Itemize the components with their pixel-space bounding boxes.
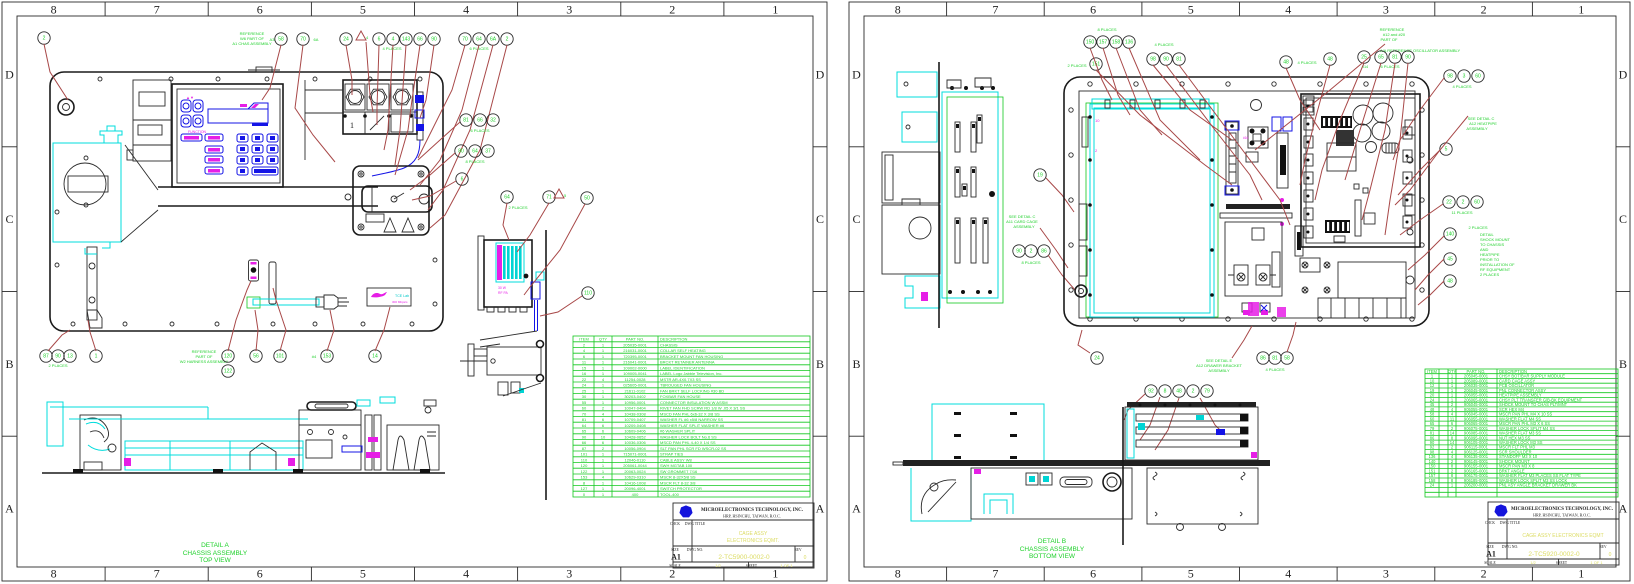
svg-text:2: 2 <box>1095 148 1098 153</box>
svg-text:1: 1 <box>602 463 605 468</box>
svg-text:LABEL IDENTIFICATION: LABEL IDENTIFICATION <box>660 366 705 371</box>
svg-text:A: A <box>5 502 14 516</box>
svg-text:A: A <box>852 502 861 516</box>
svg-text:10438-0308: 10438-0308 <box>624 412 646 417</box>
svg-text:10047-0404: 10047-0404 <box>624 406 646 411</box>
svg-text:10709-0407: 10709-0407 <box>624 417 646 422</box>
svg-text:CHASSIS: CHASSIS <box>660 343 678 348</box>
svg-text:3: 3 <box>1463 74 1466 80</box>
svg-text:58: 58 <box>278 37 284 43</box>
svg-text:A1: A1 <box>671 553 681 562</box>
svg-text:SCALE: SCALE <box>669 564 681 568</box>
svg-text:PART NO.: PART NO. <box>626 337 644 342</box>
svg-text:16: 16 <box>582 371 587 376</box>
svg-text:24: 24 <box>1094 356 1100 362</box>
svg-text:HRP, HSINCHU, TAIWAN, R.O.C.: HRP, HSINCHU, TAIWAN, R.O.C. <box>1533 513 1591 519</box>
svg-text:45: 45 <box>1447 257 1453 263</box>
svg-text:60: 60 <box>582 406 587 411</box>
svg-text:2 PLACES: 2 PLACES <box>1480 272 1499 277</box>
svg-text:81: 81 <box>1272 356 1278 362</box>
svg-text:4 PLACES: 4 PLACES <box>382 46 401 51</box>
svg-text:90: 90 <box>582 435 587 440</box>
svg-text:DETAIL A: DETAIL A <box>201 542 229 549</box>
svg-text:#6 WASHER SPLIT: #6 WASHER SPLIT <box>660 429 696 434</box>
svg-text:1: 1 <box>602 383 605 388</box>
svg-text:1: 1 <box>602 469 605 474</box>
svg-text:81: 81 <box>582 417 587 422</box>
svg-text:DWG NO.: DWG NO. <box>1502 545 1519 549</box>
svg-text:CONNECTOR INSULATION W ASSM: CONNECTOR INSULATION W ASSM <box>660 400 728 405</box>
svg-text:SW GROMMET 7/16: SW GROMMET 7/16 <box>660 469 698 474</box>
svg-text:1: 1 <box>602 354 605 359</box>
svg-text:1: 1 <box>602 389 605 394</box>
svg-text:LABEL Logo Jabble Television,: LABEL Logo Jabble Television, Inc. <box>660 371 723 376</box>
svg-text:110: 110 <box>581 458 588 463</box>
svg-text:2 PLACES: 2 PLACES <box>1067 63 1086 68</box>
svg-text:1: 1 <box>602 348 605 353</box>
svg-text:D: D <box>816 67 825 81</box>
svg-text:205061-0044: 205061-0044 <box>623 463 647 468</box>
svg-text:2: 2 <box>506 37 509 43</box>
svg-text:8: 8 <box>51 3 57 17</box>
svg-text:ELECTRONICS EQMT.: ELECTRONICS EQMT. <box>727 538 779 544</box>
svg-text:TBROUGED FAN HOUSING: TBROUGED FAN HOUSING <box>660 383 711 388</box>
svg-text:C: C <box>1619 212 1627 226</box>
svg-text:109005-0041: 109005-0041 <box>623 371 647 376</box>
svg-text:2: 2 <box>1192 389 1195 395</box>
svg-text:2-TC5900-0002-0: 2-TC5900-0002-0 <box>718 554 770 561</box>
svg-text:CHASSIS ASSEMBLY: CHASSIS ASSEMBLY <box>183 550 248 557</box>
svg-text:22: 22 <box>1446 200 1452 206</box>
svg-text:81: 81 <box>1392 55 1398 61</box>
svg-text:4: 4 <box>583 348 586 353</box>
svg-text:1/2: 1/2 <box>715 563 721 568</box>
svg-text:MSCD FAN PHL 6x6-32 X 3/8 SS: MSCD FAN PHL 6x6-32 X 3/8 SS <box>660 412 720 417</box>
svg-text:SIZE: SIZE <box>671 548 679 552</box>
svg-text:87: 87 <box>582 446 587 451</box>
svg-text:MICROELECTRONICS TECHNOLOGY, I: MICROELECTRONICS TECHNOLOGY, INC. <box>701 508 803 513</box>
svg-text:SWITCH PROTECTOR: SWITCH PROTECTOR <box>660 486 702 491</box>
svg-text:0: 0 <box>583 492 586 497</box>
svg-text:90: 90 <box>431 37 437 43</box>
svg-text:A: A <box>816 502 825 516</box>
svg-text:64: 64 <box>504 195 510 201</box>
svg-text:1/2: 1/2 <box>1530 560 1536 565</box>
svg-text:60: 60 <box>1474 200 1480 206</box>
svg-text:2: 2 <box>1030 249 1033 255</box>
svg-text:21611-0102: 21611-0102 <box>624 389 646 394</box>
svg-text:64: 64 <box>472 149 478 155</box>
svg-text:6A: 6A <box>314 37 319 42</box>
svg-text:65: 65 <box>582 429 587 434</box>
svg-text:10: 10 <box>601 435 606 440</box>
svg-text:C: C <box>816 212 824 226</box>
svg-text:4: 4 <box>602 377 605 382</box>
svg-text:2: 2 <box>583 343 586 348</box>
svg-text:DWG TITLE: DWG TITLE <box>1500 521 1521 525</box>
svg-text:98: 98 <box>1150 57 1156 63</box>
svg-text:30: 30 <box>582 394 587 399</box>
svg-text:48: 48 <box>1176 389 1182 395</box>
svg-text:4: 4 <box>602 412 605 417</box>
svg-text:2: 2 <box>1481 567 1487 581</box>
svg-text:158: 158 <box>1112 40 1121 46</box>
svg-text:ASSEMBLY: ASSEMBLY <box>1466 126 1488 131</box>
svg-text:SHEET: SHEET <box>746 564 758 568</box>
svg-text:1: 1 <box>1578 567 1584 581</box>
svg-text:TOOL-400: TOOL-400 <box>660 492 680 497</box>
svg-text:#4: #4 <box>312 354 317 359</box>
svg-text:8: 8 <box>583 481 586 486</box>
svg-text:2: 2 <box>669 567 675 581</box>
svg-text:24: 24 <box>343 37 349 43</box>
svg-text:4 PLACES: 4 PLACES <box>1154 42 1173 47</box>
svg-text:86: 86 <box>1260 356 1266 362</box>
svg-text:RIVET FAN FHD SCRW RD 1/8 W .0: RIVET FAN FHD SCRW RD 1/8 W .05 X 3/1 SS <box>660 406 746 411</box>
svg-text:37: 37 <box>485 149 491 155</box>
svg-text:101: 101 <box>581 452 588 457</box>
svg-text:WASHER FLAT SPLIT WASHER #6: WASHER FLAT SPLIT WASHER #6 <box>660 423 725 428</box>
svg-text:1: 1 <box>1578 3 1584 17</box>
svg-text:1: 1 <box>350 121 354 130</box>
svg-text:1: 1 <box>602 366 605 371</box>
svg-text:140: 140 <box>1446 232 1455 238</box>
svg-text:COLLAR SELF HEATING: COLLAR SELF HEATING <box>660 348 706 353</box>
svg-text:206200-0001: 206200-0001 <box>1464 483 1489 488</box>
svg-text:DETAIL B: DETAIL B <box>1038 538 1066 545</box>
svg-text:64: 64 <box>582 423 587 428</box>
svg-text:6 PLACES: 6 PLACES <box>1380 64 1399 69</box>
svg-text:W2 HARNESS ASSEMBLY: W2 HARNESS ASSEMBLY <box>180 359 229 364</box>
svg-text:6: 6 <box>602 440 605 445</box>
svg-text:87: 87 <box>43 354 49 360</box>
svg-text:122: 122 <box>581 469 588 474</box>
svg-text:50: 50 <box>584 196 590 202</box>
svg-text:5: 5 <box>1445 147 1448 153</box>
svg-text:127: 127 <box>581 486 588 491</box>
svg-text:64: 64 <box>476 37 482 43</box>
svg-text:70: 70 <box>462 37 468 43</box>
svg-text:81: 81 <box>1176 57 1182 63</box>
svg-text:136: 136 <box>1125 40 1134 46</box>
svg-text:22: 22 <box>582 377 587 382</box>
svg-text:10209-0408: 10209-0408 <box>624 423 646 428</box>
svg-text:58: 58 <box>1284 356 1290 362</box>
svg-text:A3: A3 <box>270 37 276 42</box>
svg-text:216041-0001: 216041-0001 <box>623 360 647 365</box>
svg-text:8: 8 <box>51 567 57 581</box>
svg-text:MSCR FLT 8-32 3/8: MSCR FLT 8-32 3/8 <box>660 481 696 486</box>
svg-text:66: 66 <box>477 118 483 124</box>
svg-text:QTY: QTY <box>599 337 608 342</box>
svg-text:150: 150 <box>1086 40 1095 46</box>
svg-text:B: B <box>852 357 860 371</box>
svg-text:WASHER LOCK BOLT No.6 SS: WASHER LOCK BOLT No.6 SS <box>660 435 717 440</box>
svg-text:SCALE: SCALE <box>1484 561 1496 565</box>
svg-text:CAGE ASSY: CAGE ASSY <box>739 531 768 537</box>
svg-text:10036-0306: 10036-0306 <box>624 440 646 445</box>
svg-text:3: 3 <box>1383 567 1389 581</box>
svg-text:8 PLACES: 8 PLACES <box>465 159 484 164</box>
svg-text:7: 7 <box>154 567 160 581</box>
svg-text:REV: REV <box>1599 545 1607 549</box>
svg-text:60: 60 <box>1475 74 1481 80</box>
svg-text:4: 4 <box>366 35 369 40</box>
svg-text:25: 25 <box>582 389 587 394</box>
svg-text:15: 15 <box>582 366 587 371</box>
svg-text:4: 4 <box>392 37 395 43</box>
svg-text:153: 153 <box>581 475 588 480</box>
svg-text:2: 2 <box>669 3 675 17</box>
svg-text:4: 4 <box>1285 3 1291 17</box>
svg-text:10629-0310: 10629-0310 <box>624 475 646 480</box>
svg-text:715071-0001: 715071-0001 <box>623 452 647 457</box>
svg-text:6 PLACES: 6 PLACES <box>470 128 489 133</box>
svg-text:B: B <box>5 357 13 371</box>
svg-text:FUNCTION: FUNCTION <box>188 130 207 134</box>
svg-text:TCE Lab: TCE Lab <box>395 294 409 298</box>
svg-text:#16: #16 <box>1243 136 1249 140</box>
svg-text:RF PA: RF PA <box>498 291 508 295</box>
svg-text:ASSEMBLY: ASSEMBLY <box>1208 368 1230 373</box>
svg-text:2: 2 <box>602 406 605 411</box>
svg-text:32: 32 <box>490 118 496 124</box>
svg-text:MSCR 8-32X5/8 SS: MSCR 8-32X5/8 SS <box>660 475 696 480</box>
svg-text:5: 5 <box>1188 567 1194 581</box>
svg-text:1: 1 <box>602 360 605 365</box>
svg-text:6: 6 <box>602 417 605 422</box>
svg-text:6: 6 <box>257 3 263 17</box>
svg-text:10416-1008: 10416-1008 <box>624 481 646 486</box>
svg-text:65: 65 <box>1378 55 1384 61</box>
svg-text:10609-0406: 10609-0406 <box>624 429 646 434</box>
svg-text:6: 6 <box>378 37 381 43</box>
svg-text:153: 153 <box>323 354 332 360</box>
svg-text:90: 90 <box>1405 55 1411 61</box>
svg-text:143: 143 <box>402 37 411 43</box>
svg-text:MICROELECTRONICS TECHNOLOGY, I: MICROELECTRONICS TECHNOLOGY, INC. <box>1511 507 1613 512</box>
svg-text:205035-0001: 205035-0001 <box>623 343 647 348</box>
svg-text:ITEM: ITEM <box>579 337 589 342</box>
svg-text:90: 90 <box>1163 57 1169 63</box>
svg-text:400: 400 <box>632 492 639 497</box>
svg-text:BRCKT RETAINER ANTENNA: BRCKT RETAINER ANTENNA <box>660 360 715 365</box>
svg-text:90: 90 <box>1016 249 1022 255</box>
svg-text:8 PLACES: 8 PLACES <box>1021 260 1040 265</box>
svg-text:157: 157 <box>1099 40 1108 46</box>
svg-text:1: 1 <box>1451 483 1454 488</box>
svg-text:2: 2 <box>43 36 46 42</box>
svg-text:1: 1 <box>772 3 778 17</box>
svg-text:1 OF 1: 1 OF 1 <box>780 563 793 568</box>
svg-text:101: 101 <box>276 354 285 360</box>
svg-text:122: 122 <box>224 369 233 375</box>
svg-text:4: 4 <box>463 567 469 581</box>
svg-text:A1 CHAS ASSEMBLY: A1 CHAS ASSEMBLY <box>232 41 272 46</box>
svg-text:4 PLACES: 4 PLACES <box>1297 60 1316 65</box>
svg-text:10: 10 <box>1095 118 1100 123</box>
svg-text:71: 71 <box>546 195 552 201</box>
svg-text:A/A REFERENCE OSCILLATOR ASSEM: A/A REFERENCE OSCILLATOR ASSEMBLY <box>1380 48 1461 53</box>
svg-text:7: 7 <box>154 3 160 17</box>
svg-text:SLT PAN PHL SCR FD WSCR-02 SS: SLT PAN PHL SCR FD WSCR-02 SS <box>660 446 727 451</box>
svg-text:DESCRIPTION: DESCRIPTION <box>660 337 687 342</box>
svg-text:D: D <box>852 67 861 81</box>
svg-text:14: 14 <box>372 354 378 360</box>
svg-text:24: 24 <box>582 383 587 388</box>
svg-text:1: 1 <box>602 492 605 497</box>
svg-text:10428-0652: 10428-0652 <box>624 435 646 440</box>
svg-text:C: C <box>5 212 13 226</box>
svg-text:4 PLACES: 4 PLACES <box>1452 84 1471 89</box>
svg-text:CHCK: CHCK <box>1485 521 1495 525</box>
svg-text:ASSEMBLY: ASSEMBLY <box>1013 224 1035 229</box>
svg-text:0: 0 <box>1609 552 1612 558</box>
svg-text:WASHER FL #6 x5/8 NARROW SS: WASHER FL #6 x5/8 NARROW SS <box>660 417 723 422</box>
svg-text:4: 4 <box>602 475 605 480</box>
svg-text:D: D <box>5 67 14 81</box>
svg-text:A1: A1 <box>1486 550 1496 559</box>
svg-text:30203-0402: 30203-0402 <box>624 394 646 399</box>
svg-text:80: 80 <box>458 149 464 155</box>
svg-text:55: 55 <box>582 400 587 405</box>
svg-text:7: 7 <box>992 3 998 17</box>
svg-text:6A: 6A <box>490 37 497 43</box>
svg-text:8: 8 <box>895 3 901 17</box>
svg-text:11: 11 <box>582 360 587 365</box>
svg-text:13: 13 <box>67 354 73 360</box>
svg-text:11 PLACES: 11 PLACES <box>1451 210 1472 215</box>
svg-text:48: 48 <box>1327 57 1333 63</box>
svg-text:3: 3 <box>1383 3 1389 17</box>
svg-text:A: A <box>1619 502 1628 516</box>
svg-text:79: 79 <box>1204 389 1210 395</box>
svg-text:720395-0001: 720395-0001 <box>623 354 647 359</box>
svg-text:STRAP TIES: STRAP TIES <box>660 452 684 457</box>
svg-text:PART OF: PART OF <box>1381 37 1398 42</box>
svg-text:1: 1 <box>602 458 605 463</box>
svg-text:109002-0000: 109002-0000 <box>623 366 647 371</box>
svg-text:90: 90 <box>55 354 61 360</box>
svg-text:2 PLACES: 2 PLACES <box>1468 225 1487 230</box>
svg-text:1: 1 <box>95 354 98 360</box>
svg-text:DWG TITLE: DWG TITLE <box>685 522 706 526</box>
svg-text:66: 66 <box>417 37 423 43</box>
svg-text:81: 81 <box>463 118 469 124</box>
svg-text:4: 4 <box>1285 567 1291 581</box>
svg-text:3: 3 <box>566 567 572 581</box>
svg-text:120: 120 <box>581 463 588 468</box>
svg-text:1: 1 <box>602 343 605 348</box>
svg-text:5: 5 <box>360 567 366 581</box>
svg-text:6: 6 <box>257 567 263 581</box>
svg-text:19: 19 <box>1037 173 1043 179</box>
svg-text:CHASSIS ASSEMBLY: CHASSIS ASSEMBLY <box>1020 546 1085 553</box>
svg-text:2: 2 <box>602 446 605 451</box>
svg-text:2: 2 <box>1462 200 1465 206</box>
svg-text:6: 6 <box>461 177 464 183</box>
svg-text:C: C <box>852 212 860 226</box>
svg-text:120: 120 <box>224 354 233 360</box>
svg-text:HRP, HSINCHU, TAIWAN, R.O.C.: HRP, HSINCHU, TAIWAN, R.O.C. <box>723 514 781 520</box>
svg-text:1: 1 <box>602 452 605 457</box>
svg-text:8 PLACES: 8 PLACES <box>1097 27 1116 32</box>
svg-text:86: 86 <box>1041 249 1047 255</box>
svg-text:7: 7 <box>992 567 998 581</box>
svg-text:1: 1 <box>602 486 605 491</box>
svg-text:FOXBAR FAN HOUSE: FOXBAR FAN HOUSE <box>660 394 701 399</box>
svg-text:1: 1 <box>772 567 778 581</box>
svg-text:2 PLACES: 2 PLACES <box>48 363 67 368</box>
svg-text:025605-0001: 025605-0001 <box>623 383 647 388</box>
svg-text:D: D <box>1619 67 1628 81</box>
svg-text:216031-0001: 216031-0001 <box>623 348 647 353</box>
svg-text:8: 8 <box>1164 389 1167 395</box>
svg-text:6: 6 <box>602 423 605 428</box>
svg-text:4 PLACES: 4 PLACES <box>1265 367 1284 372</box>
svg-text:10956-0001: 10956-0001 <box>624 400 646 405</box>
svg-text:1: 1 <box>602 371 605 376</box>
svg-text:DWG NO.: DWG NO. <box>687 548 704 552</box>
svg-text:1 OF 1: 1 OF 1 <box>1590 560 1603 565</box>
svg-text:SWH MGTAB 100: SWH MGTAB 100 <box>660 463 693 468</box>
svg-text:SIZE: SIZE <box>1486 545 1494 549</box>
svg-text:FAN BRKT SELF LOCKING #30 BD: FAN BRKT SELF LOCKING #30 BD <box>660 389 724 394</box>
svg-text:3: 3 <box>566 3 572 17</box>
svg-text:11254-0028: 11254-0028 <box>624 377 646 382</box>
svg-text:66: 66 <box>582 440 587 445</box>
svg-text:20096-4001: 20096-4001 <box>624 486 646 491</box>
svg-text:48: 48 <box>1447 279 1453 285</box>
svg-text:5: 5 <box>1188 3 1194 17</box>
svg-text:20063-0024: 20063-0024 <box>624 469 646 474</box>
svg-text:48: 48 <box>1283 60 1289 66</box>
svg-text:8: 8 <box>895 567 901 581</box>
svg-text:2 PLACES: 2 PLACES <box>508 205 527 210</box>
svg-text:110: 110 <box>584 291 592 297</box>
svg-text:▲▼: ▲▼ <box>186 95 194 100</box>
svg-text:2-TC5920-0002-0: 2-TC5920-0002-0 <box>1528 551 1580 558</box>
svg-text:5: 5 <box>564 193 567 198</box>
svg-text:4: 4 <box>463 3 469 17</box>
svg-text:6: 6 <box>583 354 586 359</box>
svg-text:10056-0904: 10056-0904 <box>624 446 646 451</box>
svg-text:98: 98 <box>1447 74 1453 80</box>
svg-text:300 Mbps/s: 300 Mbps/s <box>392 300 408 304</box>
svg-text:12046-0110: 12046-0110 <box>624 458 646 463</box>
svg-text:PNL ASY ANGLE BRACKET DRAWER B: PNL ASY ANGLE BRACKET DRAWER BK <box>1499 483 1577 488</box>
svg-text:SHEET: SHEET <box>1556 561 1568 565</box>
svg-text:1: 1 <box>602 481 605 486</box>
svg-text:TOP VIEW: TOP VIEW <box>199 557 231 564</box>
svg-text:6: 6 <box>1090 567 1096 581</box>
svg-text:MSCD PAN PHL 4-40 X 1/4 SS: MSCD PAN PHL 4-40 X 1/4 SS <box>660 440 716 445</box>
svg-text:B: B <box>1619 357 1627 371</box>
svg-text:CAGE ASSY ELECTRONICS EQMT: CAGE ASSY ELECTRONICS EQMT <box>1522 533 1603 539</box>
svg-text:CHCK: CHCK <box>670 522 680 526</box>
svg-text:0: 0 <box>804 555 807 561</box>
svg-text:MSTR AR-4X0.7X3 SS: MSTR AR-4X0.7X3 SS <box>660 377 701 382</box>
svg-text:56: 56 <box>253 354 259 360</box>
svg-text:70: 70 <box>300 37 306 43</box>
svg-text:B: B <box>816 357 824 371</box>
svg-text:1: 1 <box>602 400 605 405</box>
svg-text:92: 92 <box>1148 389 1154 395</box>
svg-text:6: 6 <box>602 429 605 434</box>
svg-text:BOTTOM VIEW: BOTTOM VIEW <box>1029 553 1076 560</box>
svg-text:REV: REV <box>794 548 802 552</box>
svg-text:6: 6 <box>1090 3 1096 17</box>
